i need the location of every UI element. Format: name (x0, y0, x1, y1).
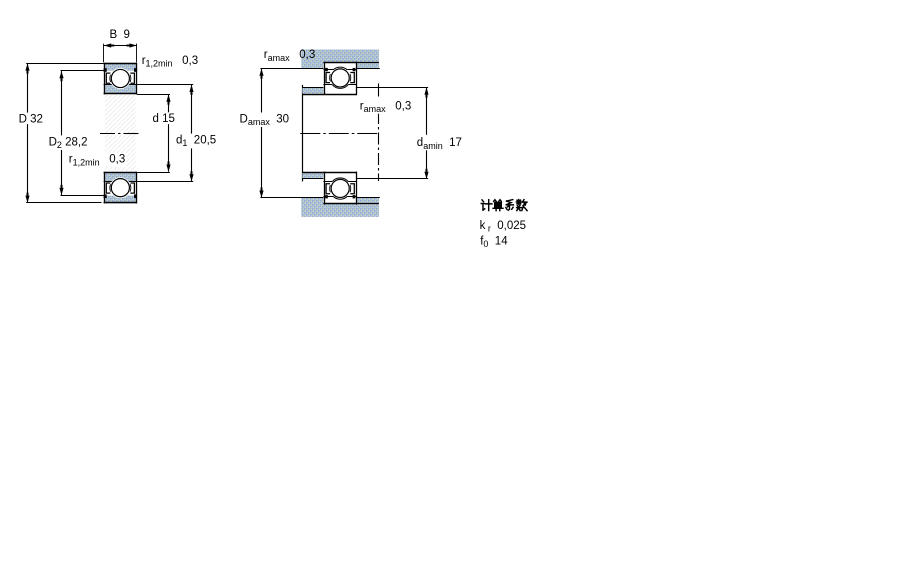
svg-text:d 15: d 15 (153, 113, 175, 125)
svg-text:D2​ 28,2: D2​ 28,2 (49, 136, 88, 150)
svg-text:D 32: D 32 (19, 113, 43, 125)
svg-text:d1​ 20,5: d1​ 20,5 (176, 135, 216, 149)
svg-text:B 9: B 9 (110, 29, 130, 41)
